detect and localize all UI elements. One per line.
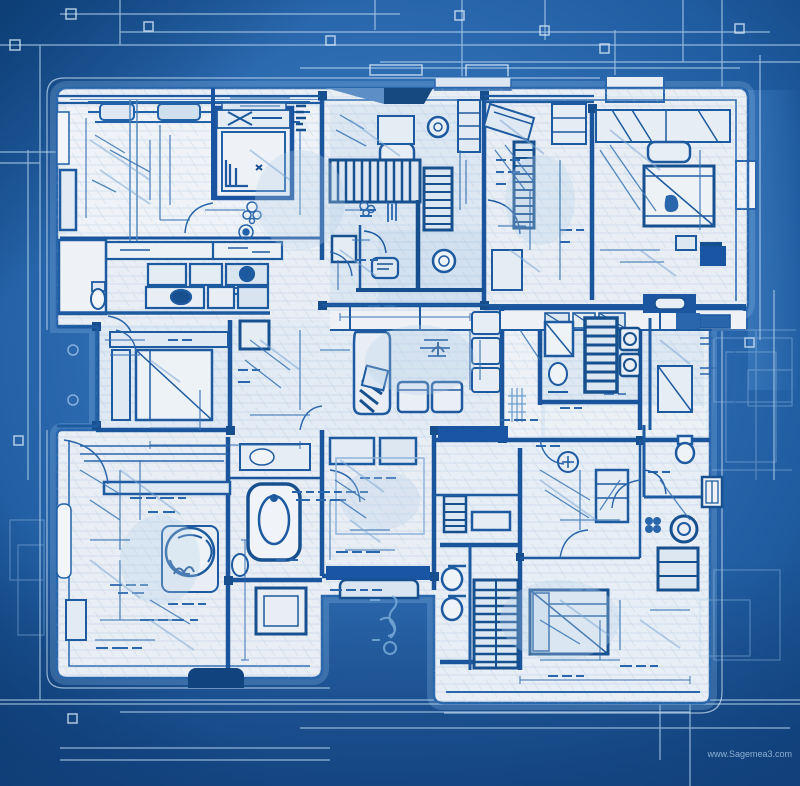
svg-text:www.Sagemea3.com: www.Sagemea3.com: [706, 749, 792, 759]
